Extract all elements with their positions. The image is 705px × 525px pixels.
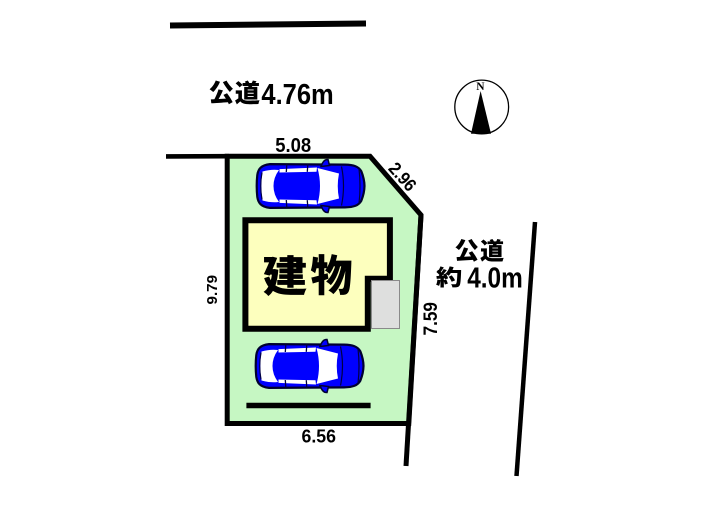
svg-text:4.0m: 4.0m (467, 262, 523, 294)
svg-text:7.59: 7.59 (421, 302, 442, 336)
svg-text:4.76m: 4.76m (261, 79, 333, 111)
svg-text:6.56: 6.56 (302, 426, 337, 447)
svg-text:9.79: 9.79 (205, 275, 221, 305)
svg-text:N: N (476, 81, 485, 93)
svg-text:5.08: 5.08 (275, 135, 311, 157)
